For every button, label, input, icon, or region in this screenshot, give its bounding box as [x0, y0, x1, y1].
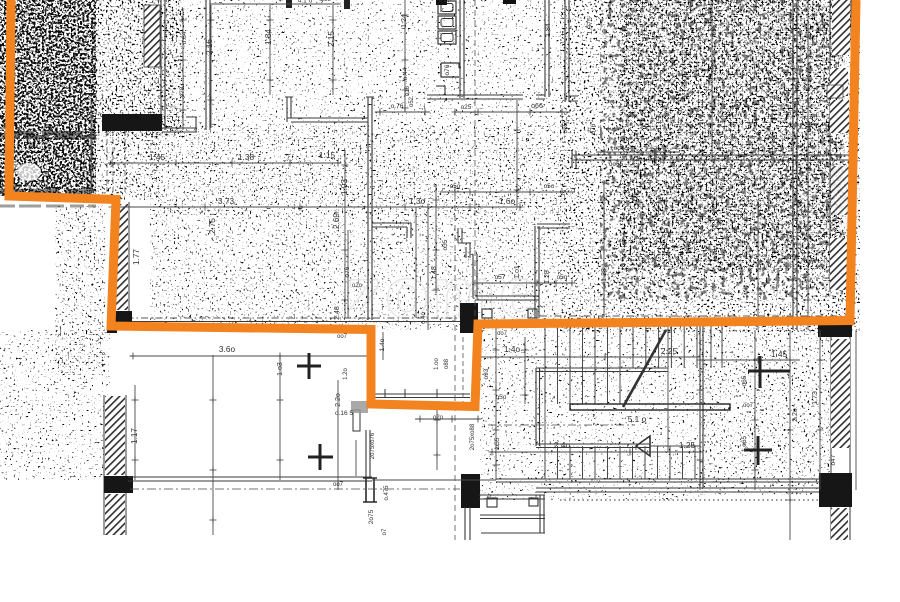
svg-text:1.4o: 1.4o — [379, 338, 386, 351]
svg-text:oo65: oo65 — [609, 161, 624, 168]
svg-text:2.25: 2.25 — [661, 346, 678, 356]
svg-text:o88: o88 — [444, 358, 450, 369]
svg-text:oo7: oo7 — [743, 403, 754, 409]
svg-text:1.84: 1.84 — [545, 23, 552, 37]
svg-text:o.88: o.88 — [319, 0, 331, 3]
svg-text:1.93: 1.93 — [340, 179, 349, 195]
svg-text:2.48: 2.48 — [334, 306, 341, 320]
svg-text:o78: o78 — [805, 121, 812, 132]
svg-text:o57: o57 — [495, 274, 506, 281]
svg-text:o.16 5: o.16 5 — [335, 410, 353, 417]
svg-text:2.16: 2.16 — [205, 39, 214, 55]
svg-text:1.6o: 1.6o — [499, 196, 516, 206]
svg-text:o2o: o2o — [352, 283, 363, 289]
svg-text:o5o: o5o — [496, 394, 507, 401]
svg-text:o78: o78 — [712, 248, 719, 259]
svg-text:oo7: oo7 — [333, 482, 344, 488]
svg-text:o66: o66 — [531, 103, 543, 110]
svg-text:o7: o7 — [382, 528, 388, 535]
svg-text:o76: o76 — [444, 64, 451, 75]
svg-text:o52: o52 — [409, 96, 415, 107]
svg-text:o78: o78 — [179, 86, 186, 97]
svg-text:o93: o93 — [483, 368, 490, 379]
svg-text:1.45: 1.45 — [149, 152, 166, 162]
svg-text:oo7: oo7 — [337, 334, 348, 340]
svg-text:o55: o55 — [711, 24, 718, 35]
svg-text:2o75xo76: 2o75xo76 — [370, 432, 376, 459]
svg-text:o55: o55 — [494, 437, 501, 448]
svg-text:o2o: o2o — [433, 415, 444, 421]
svg-text:o76: o76 — [344, 266, 351, 277]
svg-text:1.28: 1.28 — [544, 270, 551, 284]
svg-text:3.73: 3.73 — [218, 196, 235, 206]
svg-text:3.6o: 3.6o — [219, 344, 236, 354]
svg-text:1.28: 1.28 — [601, 268, 608, 282]
svg-text:1.975: 1.975 — [587, 17, 594, 35]
svg-text:o.76: o.76 — [391, 103, 404, 110]
svg-text:o.84: o.84 — [181, 31, 188, 44]
svg-text:2.75: 2.75 — [208, 218, 217, 234]
svg-text:+oo65: +oo65 — [610, 145, 629, 152]
svg-text:2.6o: 2.6o — [789, 50, 796, 64]
svg-text:1.48: 1.48 — [431, 266, 438, 280]
svg-text:2.69: 2.69 — [332, 213, 341, 229]
svg-text:o5o: o5o — [450, 183, 461, 190]
svg-text:o.4o: o.4o — [421, 312, 427, 324]
svg-text:o76: o76 — [590, 123, 597, 134]
svg-text:1.15: 1.15 — [319, 150, 336, 160]
svg-text:1.24: 1.24 — [401, 14, 408, 28]
svg-text:o65: o65 — [562, 122, 569, 133]
svg-text:o35: o35 — [442, 239, 449, 250]
svg-text:1.o3: 1.o3 — [277, 362, 284, 376]
svg-text:1.2o: 1.2o — [343, 368, 349, 380]
svg-text:1.73: 1.73 — [812, 391, 819, 405]
svg-text:o16: o16 — [405, 85, 411, 96]
svg-text:5.1 o: 5.1 o — [628, 414, 647, 424]
svg-text:2.15: 2.15 — [327, 31, 336, 47]
svg-text:o5o: o5o — [557, 274, 568, 281]
svg-text:1.45: 1.45 — [771, 349, 788, 359]
svg-text:o5o: o5o — [544, 183, 555, 190]
svg-text:1.o1: 1.o1 — [514, 265, 521, 279]
svg-text:1.77: 1.77 — [132, 249, 141, 265]
svg-text:1.25: 1.25 — [679, 440, 696, 450]
svg-text:2o75xo88: 2o75xo88 — [470, 423, 476, 450]
svg-text:1.4o: 1.4o — [504, 344, 521, 354]
svg-text:o.23: o.23 — [439, 0, 451, 4]
svg-text:2.2o: 2.2o — [792, 408, 799, 422]
svg-text:2.88: 2.88 — [711, 59, 718, 73]
svg-text:o65: o65 — [741, 375, 748, 386]
svg-text:1.38: 1.38 — [238, 152, 255, 162]
svg-text:2.4o: 2.4o — [554, 440, 571, 450]
svg-text:o.44: o.44 — [402, 67, 409, 80]
svg-text:2.2o: 2.2o — [335, 393, 342, 407]
svg-text:1.63: 1.63 — [797, 199, 804, 213]
svg-text:o.475: o.475 — [384, 485, 390, 501]
svg-text:2o75: 2o75 — [368, 509, 375, 524]
svg-text:1.84: 1.84 — [264, 29, 273, 45]
svg-text:4.1 o: 4.1 o — [298, 0, 313, 5]
svg-text:oo7: oo7 — [497, 331, 508, 337]
svg-text:o47: o47 — [830, 454, 837, 465]
svg-text:1.oo: 1.oo — [434, 358, 440, 370]
svg-text:o25: o25 — [461, 104, 472, 111]
svg-text:2.24: 2.24 — [787, 230, 794, 244]
svg-text:1.o65: 1.o65 — [741, 435, 748, 452]
svg-text:1.14: 1.14 — [802, 276, 809, 290]
svg-text:1.3o: 1.3o — [409, 196, 426, 206]
svg-text:1.17: 1.17 — [130, 428, 139, 444]
